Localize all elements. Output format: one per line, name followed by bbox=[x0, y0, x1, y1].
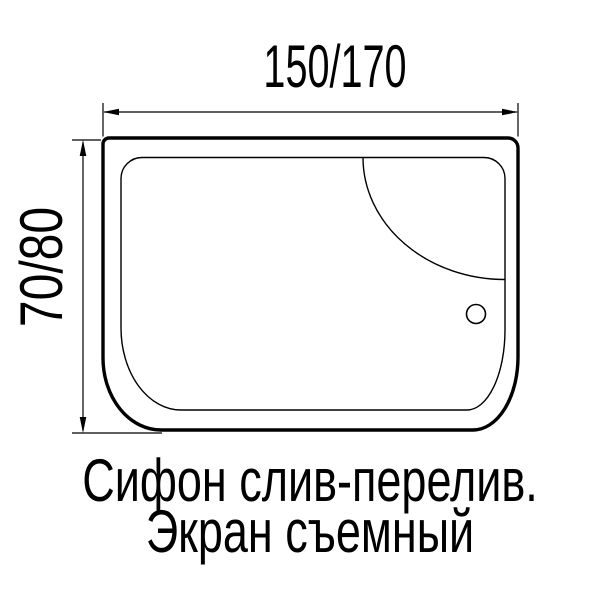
side-dimension-label: 70/80 bbox=[12, 207, 72, 327]
arrowhead-down-icon bbox=[80, 417, 87, 433]
bathtub-outer-outline bbox=[103, 138, 518, 430]
top-dimension-label: 150/170 bbox=[263, 37, 406, 97]
arrowhead-left-icon bbox=[103, 109, 119, 116]
horizontal-dimension bbox=[103, 103, 518, 137]
caption-line-screen: Экран съемный bbox=[146, 502, 474, 562]
arrowhead-up-icon bbox=[80, 140, 87, 156]
diagram-canvas: 150/170 70/80 Сифон слив-перелив. Экран … bbox=[0, 0, 600, 600]
arrowhead-right-icon bbox=[502, 109, 518, 116]
